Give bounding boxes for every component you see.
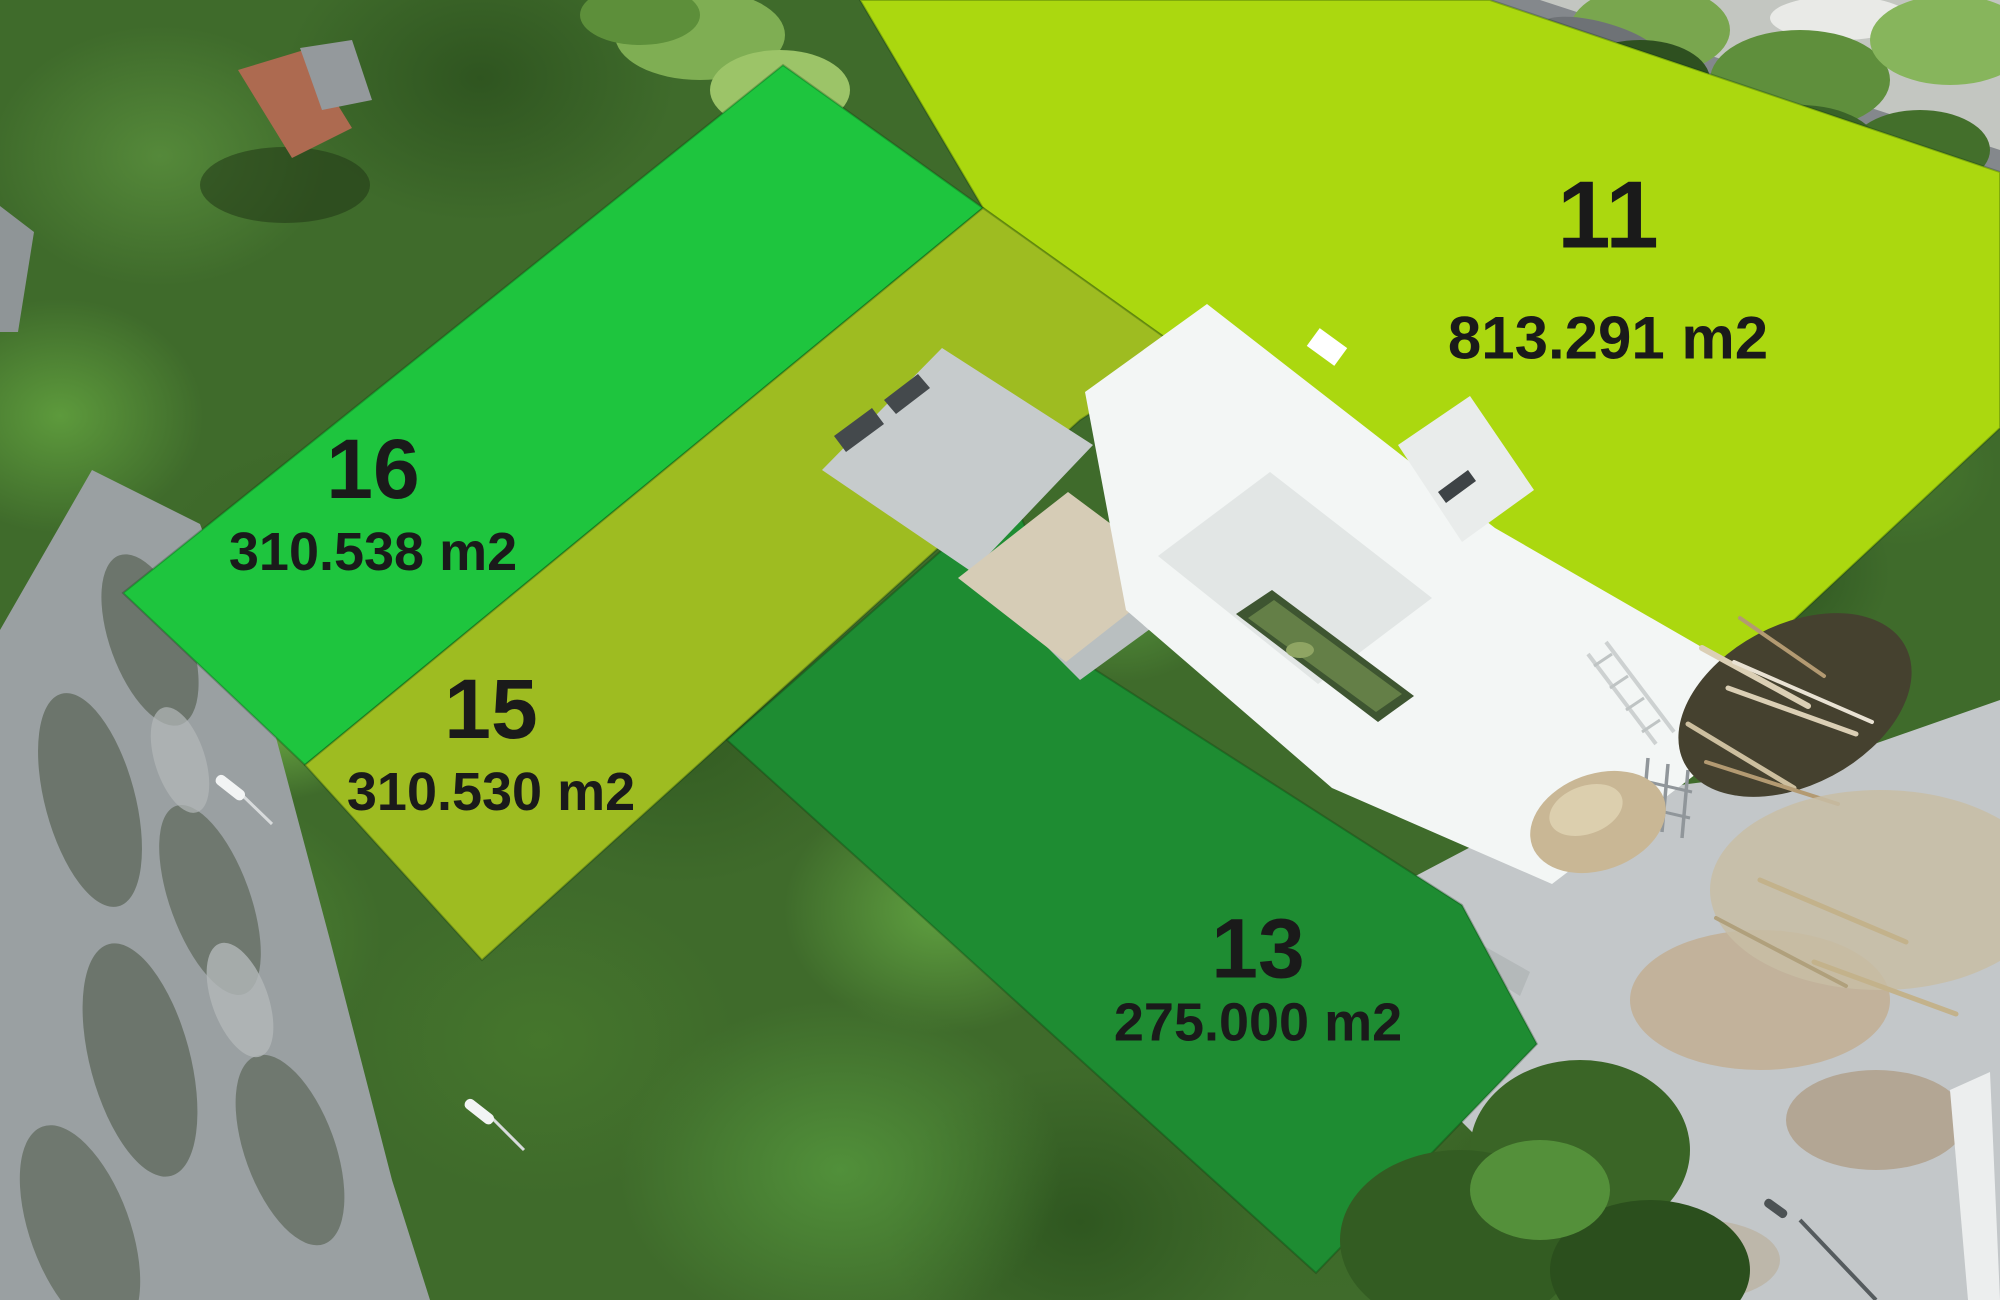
lot-area: 275.000 m2 bbox=[1114, 996, 1402, 1050]
tree-blob bbox=[1470, 1140, 1610, 1240]
lot-number: 15 bbox=[347, 667, 635, 751]
lot-number: 13 bbox=[1114, 907, 1402, 991]
left-road-upper-sliver bbox=[0, 206, 34, 332]
lot-label-13: 13 275.000 m2 bbox=[1114, 907, 1402, 1050]
lot-label-15: 15 310.530 m2 bbox=[347, 667, 635, 819]
lot-area: 310.538 m2 bbox=[229, 525, 517, 579]
lot-label-11: 11 813.291 m2 bbox=[1448, 168, 1768, 369]
street-lamp-left-2 bbox=[463, 1097, 524, 1150]
house-shadow bbox=[200, 147, 370, 223]
lot-number: 16 bbox=[229, 427, 517, 511]
lot-area: 813.291 m2 bbox=[1448, 309, 1768, 369]
sand-stain bbox=[1786, 1070, 1966, 1170]
aerial-lot-map: 11 813.291 m2 16 310.538 m2 15 310.530 m… bbox=[0, 0, 2000, 1300]
neighbor-house-top-left bbox=[200, 40, 372, 223]
lamp-head bbox=[463, 1097, 497, 1127]
lot-label-16: 16 310.538 m2 bbox=[229, 427, 517, 579]
pool-highlight bbox=[1286, 642, 1314, 658]
lot-number: 11 bbox=[1448, 168, 1768, 264]
lot-area: 310.530 m2 bbox=[347, 765, 635, 819]
lamp-pole bbox=[492, 1118, 524, 1150]
